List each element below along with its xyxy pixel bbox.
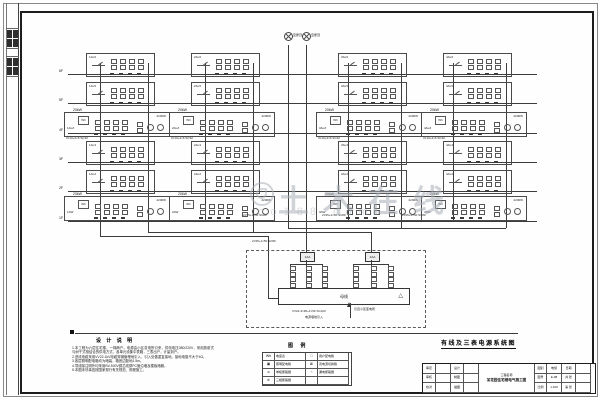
- breaker-icons: [361, 59, 397, 69]
- distribution-box: 3AL5: [338, 82, 407, 106]
- breaker-icons: [345, 204, 381, 214]
- legend-symbol: □: [306, 353, 318, 361]
- load-label: 20kW: [177, 192, 188, 196]
- meter-box: 20kW 3ALZ Wh 2200W: [316, 112, 422, 137]
- legend-symbol: [306, 377, 318, 385]
- circuit-labels: [94, 133, 128, 135]
- breaker-icons: [214, 59, 250, 69]
- legend-symbol: ▣: [263, 361, 275, 369]
- circuit-labels: [110, 190, 144, 192]
- breaker-icons: [109, 88, 145, 98]
- breaker-icons: [466, 59, 502, 69]
- breaker-icons: [450, 120, 486, 130]
- titleblock-label: 审定: [423, 364, 436, 374]
- breaker-icons: [361, 176, 397, 186]
- rating-label: 2200W: [261, 114, 271, 118]
- box-label: 3AW: [319, 210, 325, 214]
- circuit-labels: [362, 73, 396, 75]
- cad-drawing-sheet: 6F 5F 4F 3F 2F 1F 至屋顶 至屋顶 2×95+1×50 SC80…: [0, 0, 600, 400]
- breaker-icons: [466, 88, 502, 98]
- legend-name: 双电源切换箱: [318, 361, 349, 369]
- rating-label: 2200W: [261, 198, 271, 202]
- notes-line: 1.本工程为六层住宅楼，一梯两户。电源由小区变电所引来，供电电压380/220V…: [72, 346, 214, 355]
- titleblock-value: E-08: [547, 374, 562, 384]
- titleblock-cell: [436, 364, 451, 374]
- meter-box: 20kW 2AW Wh 2200W: [169, 196, 275, 221]
- box-label: 1AL3: [89, 143, 96, 147]
- main-switch-icon: [92, 94, 105, 95]
- main-switch-icon: [92, 65, 105, 66]
- energy-meter-icon: Wh: [330, 200, 341, 209]
- main-switch-icon: [344, 153, 357, 154]
- circuit-labels: [467, 73, 501, 75]
- breaker-icons: [214, 147, 250, 157]
- titleblock-value: 1:100: [547, 383, 562, 393]
- rating-label: 2200W: [156, 114, 166, 118]
- breaker-icons: [198, 204, 234, 214]
- breaker-icons: [361, 147, 397, 157]
- titleblock-label: 校对: [423, 383, 436, 393]
- circuit-labels: [215, 190, 249, 192]
- legend-symbol: ⊘: [263, 377, 275, 385]
- titleblock-cell: [436, 383, 451, 393]
- box-label: 1AL6: [89, 55, 96, 59]
- main-switch-icon: [92, 182, 105, 183]
- titleblock-cell: [464, 383, 479, 393]
- distribution-box: 3AL3: [338, 141, 407, 165]
- box-label: 4AW: [424, 210, 430, 214]
- breaker-icons: [109, 59, 145, 69]
- breaker-icon: [290, 266, 295, 276]
- box-label: 4AL2: [446, 172, 453, 176]
- legend-symbol: ⊠: [306, 361, 318, 369]
- breaker-icons: [214, 88, 250, 98]
- rating-label: 2200W: [408, 114, 418, 118]
- circuit-labels: [199, 217, 233, 219]
- legend-name: 电度表: [275, 353, 306, 361]
- meter-box: 20kW 4AW Wh 2200W: [421, 196, 527, 221]
- titleblock-cell: [576, 374, 591, 384]
- roof-feed-label: 至屋顶: [311, 34, 320, 38]
- breaker-icons: [198, 120, 234, 130]
- legend-table: Wh 电度表 □ 用户配电箱 ▣ 照明配电箱 ⊠ 双电源切换箱 ⌀ 单极断路器 …: [262, 352, 352, 386]
- main-switch-icon: [92, 153, 105, 154]
- legend-name: 用户配电箱: [318, 353, 349, 361]
- box-label: 4AL6: [446, 55, 453, 59]
- energy-meter-icon: Wh: [435, 200, 446, 209]
- load-label: 20kW: [72, 192, 83, 196]
- distribution-box: 4AL6: [443, 53, 512, 77]
- main-switch-icon: [197, 182, 210, 183]
- breaker-icon: [306, 266, 311, 276]
- main-switch-icon: [449, 182, 462, 183]
- changeover-icons: [492, 206, 521, 216]
- cable-spec: 3×10+2×6 SC32: [66, 137, 88, 141]
- titleblock-cell: [436, 374, 451, 384]
- breaker-icon: [353, 277, 358, 287]
- energy-meter-icon: Wh: [183, 116, 194, 125]
- incoming-note: 电源埋地引入: [305, 316, 323, 320]
- box-label: 3AL2: [341, 172, 348, 176]
- circuit-labels: [110, 73, 144, 75]
- connector-line: [288, 228, 506, 229]
- box-label: 1AL2: [89, 172, 96, 176]
- incoming-switch-box: 1AA: [300, 252, 315, 262]
- box-label: 1AL5: [89, 84, 96, 88]
- breaker-icon: [290, 277, 295, 287]
- circuit-labels: [362, 161, 396, 163]
- breaker-icon: [306, 277, 311, 287]
- meter-box: 20kW 2ALZ Wh 2200W: [169, 112, 275, 137]
- distribution-box: 1AL2: [86, 170, 155, 194]
- roof-fan-icon: [284, 32, 293, 41]
- box-label: 4AL3: [446, 143, 453, 147]
- connector-line: [100, 236, 268, 237]
- notes-marker: [70, 330, 74, 334]
- arrow-up-icon: [347, 302, 351, 307]
- delta-icon: △: [398, 293, 403, 299]
- circuit-labels: [451, 133, 485, 135]
- titleblock-cell: [464, 374, 479, 384]
- breaker-icons: [93, 120, 129, 130]
- box-label: 2ALZ: [172, 126, 179, 130]
- circuit-labels: [362, 102, 396, 104]
- box-label: 2AL2: [194, 172, 201, 176]
- legend-name: [318, 377, 349, 385]
- breaker-icon: [388, 266, 393, 276]
- floor-label: 4F: [59, 128, 63, 132]
- circuit-labels: [467, 161, 501, 163]
- box-label: 4AL5: [446, 84, 453, 88]
- main-switch-icon: [344, 182, 357, 183]
- connector-line: [371, 232, 372, 252]
- box-label: 2AL3: [194, 143, 201, 147]
- signature-stamp: [6, 56, 19, 77]
- circuit-labels: [215, 161, 249, 163]
- distribution-box: 3AL2: [338, 170, 407, 194]
- energy-meter-icon: Wh: [78, 200, 89, 209]
- changeover-icons: [240, 206, 269, 216]
- busbar-box: 母线 △: [278, 288, 410, 305]
- notes-title: 设 计 说 明: [96, 337, 214, 344]
- circuit-labels: [451, 217, 485, 219]
- box-label: 2AW: [172, 210, 178, 214]
- energy-meter-icon: Wh: [78, 116, 89, 125]
- roof-riser-line: [288, 45, 289, 228]
- project-name-cell: 工程名称 某花园住宅楼电气施工图: [479, 364, 535, 393]
- legend-symbol: ⌁: [306, 369, 318, 377]
- titleblock-cell: [576, 383, 591, 393]
- figure-title: 有线及三表电源系统图: [441, 338, 516, 349]
- legend-name: 漏电断路器: [318, 369, 349, 377]
- legend-name: 单极断路器: [275, 369, 306, 377]
- meter-box: 20kW 4ALZ Wh 2200W: [421, 112, 527, 137]
- roof-fan-icon: [302, 32, 311, 41]
- titleblock-label: 日期: [562, 364, 576, 374]
- distribution-box: 1AL5: [86, 82, 155, 106]
- energy-meter-icon: Wh: [183, 200, 194, 209]
- distribution-box: 1AL3: [86, 141, 155, 165]
- load-label: 20kW: [72, 108, 83, 112]
- box-label: 3ALZ: [319, 126, 326, 130]
- load-label: 20kW: [429, 192, 440, 196]
- design-notes: 设 计 说 明 1.本工程为六层住宅楼，一梯两户。电源由小区变电所引来，供电电压…: [72, 337, 214, 372]
- titleblock-label: 审核: [423, 374, 436, 384]
- circuit-labels: [467, 190, 501, 192]
- changeover-icons: [492, 122, 521, 132]
- rating-label: 2200W: [408, 198, 418, 202]
- breaker-icon: [388, 277, 393, 287]
- box-label: 3AL5: [341, 84, 348, 88]
- cable-spec: 3×10+2×6 SC32: [171, 137, 193, 141]
- changeover-icons: [240, 122, 269, 132]
- energy-meter-icon: Wh: [330, 116, 341, 125]
- circuit-labels: [362, 190, 396, 192]
- titleblock-label: 第 张: [562, 383, 576, 393]
- project-name: 某花园住宅楼电气施工图: [487, 379, 527, 383]
- floor-label: 5F: [59, 98, 63, 102]
- circuit-labels: [110, 102, 144, 104]
- distribution-box: 1AL6: [86, 53, 155, 77]
- floor-label: 1F: [59, 216, 63, 220]
- changeover-icons: [387, 122, 416, 132]
- incoming-cable-spec: VV22-4×95+1×50 SC100: [292, 310, 326, 314]
- main-switch-icon: [449, 94, 462, 95]
- cable-spec: 2×95+1×50 SC80: [252, 240, 276, 244]
- rating-label: 2200W: [513, 114, 523, 118]
- load-label: 20kW: [429, 108, 440, 112]
- box-label: 1AW: [67, 210, 73, 214]
- load-label: 20kW: [177, 108, 188, 112]
- source-note: 引自小区变电所: [354, 308, 375, 312]
- breaker-icon: [322, 266, 327, 276]
- titleblock-label: 图别: [535, 364, 547, 374]
- main-switch-icon: [344, 94, 357, 95]
- cable-spec: 3×10+2×6 SC32: [423, 137, 445, 141]
- circuit-labels: [346, 217, 380, 219]
- energy-meter-icon: Wh: [435, 116, 446, 125]
- floor-label: 3F: [59, 157, 63, 161]
- busbar-label: 母线: [279, 294, 409, 300]
- load-label: 20kW: [324, 108, 335, 112]
- breaker-icons: [109, 147, 145, 157]
- titleblock-label: 描图: [451, 383, 464, 393]
- notes-divider: [75, 333, 518, 334]
- main-switch-icon: [197, 65, 210, 66]
- roof-riser-line: [306, 45, 307, 252]
- meter-box: 20kW 1AW Wh 2200W: [64, 196, 170, 221]
- titleblock-label: 设计: [451, 364, 464, 374]
- main-switch-icon: [449, 153, 462, 154]
- changeover-icons: [387, 206, 416, 216]
- main-switch-icon: [197, 94, 210, 95]
- breaker-icons: [361, 88, 397, 98]
- legend-name: 三相断路器: [275, 377, 306, 385]
- distribution-box: 4AL3: [443, 141, 512, 165]
- circuit-labels: [199, 133, 233, 135]
- titleblock-value: 电施: [547, 364, 562, 374]
- titleblock-label: 比例: [535, 383, 547, 393]
- circuit-labels: [94, 217, 128, 219]
- breaker-icons: [214, 176, 250, 186]
- titleblock-label: 制图: [451, 374, 464, 384]
- changeover-icons: [135, 206, 164, 216]
- main-switch-icon: [344, 65, 357, 66]
- incoming-switch-box: 2AA: [365, 252, 380, 262]
- breaker-icon: [371, 277, 376, 287]
- project-label: 工程名称: [500, 374, 512, 377]
- rating-label: 2200W: [156, 198, 166, 202]
- cable-spec: 3×10+2×6 SC32: [318, 137, 340, 141]
- box-label: 2AL5: [194, 84, 201, 88]
- breaker-icon: [353, 266, 358, 276]
- meter-box: 20kW 1ALZ Wh 2200W: [64, 112, 170, 137]
- circuit-labels: [346, 133, 380, 135]
- floor-label: 6F: [59, 69, 63, 73]
- titleblock-cell: [464, 364, 479, 374]
- breaker-icon: [322, 277, 327, 287]
- box-label: 3AL3: [341, 143, 348, 147]
- distribution-box: 3AL6: [338, 53, 407, 77]
- circuit-labels: [467, 102, 501, 104]
- meter-box: 20kW 3AW Wh 2200W: [316, 196, 422, 221]
- title-block: 审定 设计 工程名称 某花园住宅楼电气施工图 图别 电施 日期 审核 制图 图号…: [422, 363, 596, 394]
- connector-line: [148, 232, 371, 233]
- legend-title: 图 例: [288, 342, 308, 349]
- load-label: 20kW: [324, 192, 335, 196]
- breaker-icons: [466, 147, 502, 157]
- main-switch-icon: [197, 153, 210, 154]
- circuit-labels: [215, 102, 249, 104]
- distribution-box: 4AL2: [443, 170, 512, 194]
- legend-symbol: ⌀: [263, 369, 275, 377]
- breaker-icons: [450, 204, 486, 214]
- floor-label: 2F: [59, 186, 63, 190]
- box-label: 3AL6: [341, 55, 348, 59]
- titleblock-label: 图号: [535, 374, 547, 384]
- signature-stamp: [6, 28, 19, 49]
- circuit-labels: [110, 161, 144, 163]
- rating-label: 2200W: [513, 198, 523, 202]
- distribution-box: 2AL5: [191, 82, 260, 106]
- breaker-icons: [466, 176, 502, 186]
- box-label: 1ALZ: [67, 126, 74, 130]
- legend-name: 照明配电箱: [275, 361, 306, 369]
- notes-line: 5.本图未尽事宜按国家现行有关规范、规程施工。: [72, 368, 214, 372]
- circuit-labels: [215, 73, 249, 75]
- box-label: 2AL6: [194, 55, 201, 59]
- legend-symbol: Wh: [263, 353, 275, 361]
- breaker-icons: [93, 204, 129, 214]
- titleblock-cell: [576, 364, 591, 374]
- distribution-box: 2AL2: [191, 170, 260, 194]
- breaker-icon: [371, 266, 376, 276]
- main-switch-icon: [449, 65, 462, 66]
- box-label: 4ALZ: [424, 126, 431, 130]
- distribution-box: 2AL3: [191, 141, 260, 165]
- breaker-icons: [109, 176, 145, 186]
- roof-feed-label: 至屋顶: [293, 34, 302, 38]
- titleblock-label: 共 张: [562, 374, 576, 384]
- breaker-icons: [345, 120, 381, 130]
- distribution-box: 4AL5: [443, 82, 512, 106]
- bus-line: [68, 221, 537, 222]
- changeover-icons: [135, 122, 164, 132]
- distribution-box: 2AL6: [191, 53, 260, 77]
